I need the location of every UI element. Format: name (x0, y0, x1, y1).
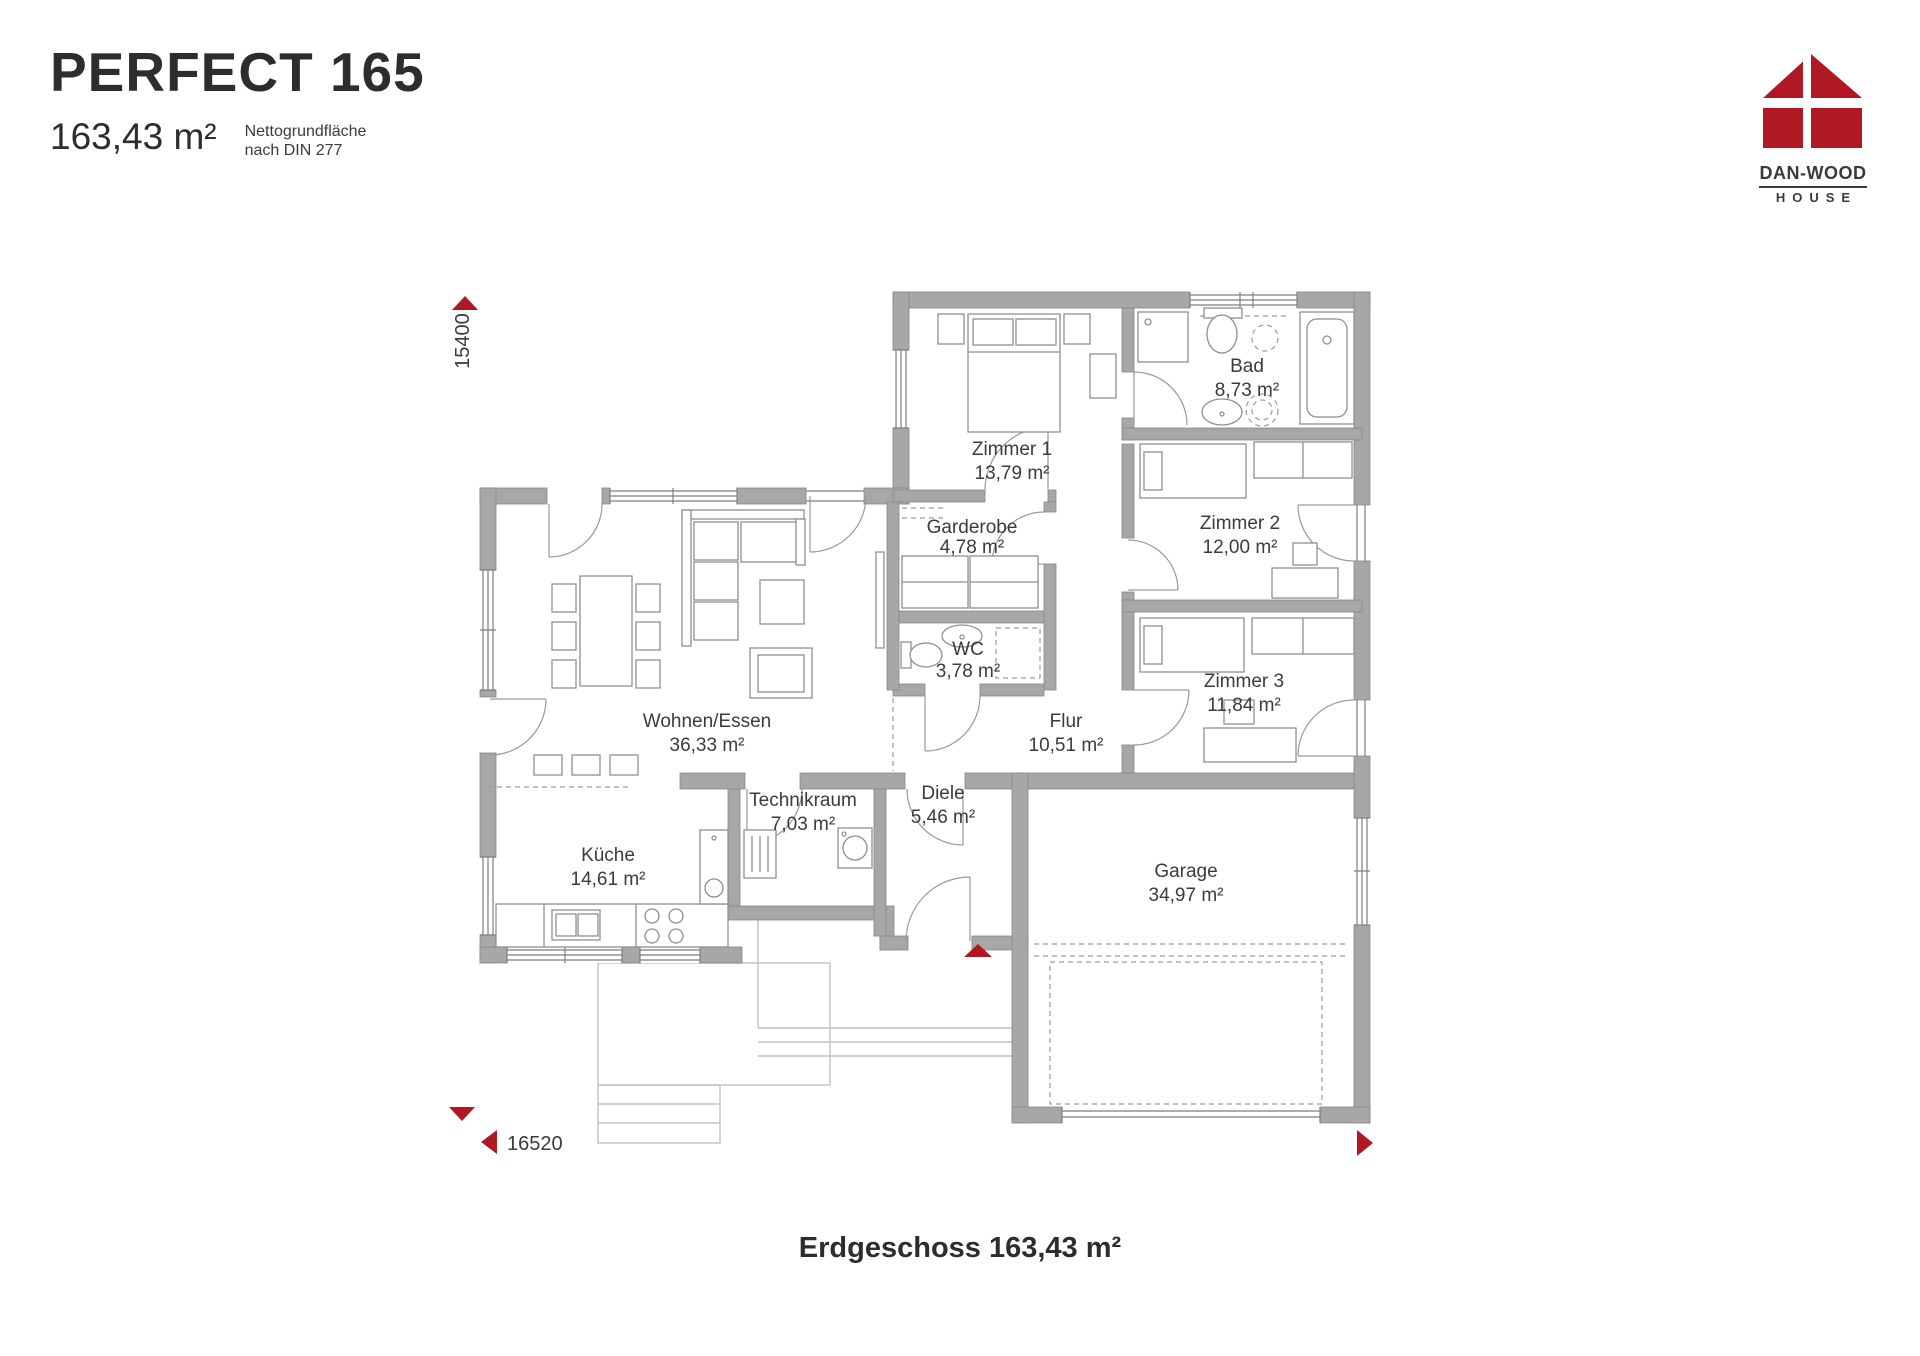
floor-plan: 15400 16520 Zimmer 1 13,79 m² Bad 8,73 m… (0, 0, 1920, 1356)
window-garage (1354, 818, 1370, 925)
room-label-bad-name: Bad (1230, 356, 1264, 377)
room-label-wohnen-area: 36,33 m² (670, 735, 745, 756)
window-wohnen-left (480, 570, 496, 690)
arrow-left-icon (481, 1130, 497, 1154)
room-label-zimmer3-name: Zimmer 3 (1204, 671, 1284, 692)
dimension-height-label: 15400 (452, 313, 474, 369)
room-label-diele-name: Diele (921, 783, 964, 804)
window-kueche-bottom-2 (640, 947, 700, 963)
room-label-garderobe-name: Garderobe (927, 517, 1018, 538)
room-label-wc-name: WC (952, 639, 984, 660)
room-label-wohnen-name: Wohnen/Essen (643, 711, 772, 732)
room-label-wc-area: 3,78 m² (936, 661, 1000, 682)
room-label-zimmer1-name: Zimmer 1 (972, 439, 1052, 460)
garderobe-furniture (902, 556, 1038, 608)
room-label-zimmer2-name: Zimmer 2 (1200, 513, 1280, 534)
arrow-up-icon (452, 296, 478, 310)
dimension-width-label: 16520 (507, 1133, 563, 1155)
zimmer1-furniture (938, 314, 1116, 432)
room-label-garderobe-area2: 4,78 m² (940, 537, 1004, 558)
window-kueche-left (480, 857, 496, 935)
technikraum-equipment (744, 828, 872, 878)
room-label-zimmer1-area: 13,79 m² (975, 463, 1050, 484)
room-label-bad-area: 8,73 m² (1215, 380, 1279, 401)
room-label-technikraum-name: Technikraum (749, 790, 857, 811)
room-label-zimmer3-area: 11,84 m² (1207, 695, 1281, 716)
window-zimmer1 (893, 350, 909, 428)
page: PERFECT 165 163,43 m² Nettogrundfläche n… (0, 0, 1920, 1356)
window-bad (1190, 292, 1297, 308)
room-label-flur-name: Flur (1050, 711, 1083, 732)
garage-door (1062, 1107, 1320, 1123)
arrow-right-icon (1357, 1130, 1373, 1156)
room-label-flur-area: 10,51 m² (1029, 735, 1104, 756)
direction-markers (449, 296, 1373, 1156)
room-label-kueche-name: Küche (581, 845, 635, 866)
window-kueche-bottom-1 (507, 947, 622, 963)
window-wohnen-top (610, 488, 737, 504)
room-label-zimmer2-area: 12,00 m² (1203, 537, 1278, 558)
room-label-kueche-area: 14,61 m² (571, 869, 646, 890)
room-label-garage-name: Garage (1154, 861, 1217, 882)
room-label-technikraum-area: 7,03 m² (771, 814, 835, 835)
floor-label: Erdgeschoss 163,43 m² (0, 1232, 1920, 1265)
arrow-down-icon (449, 1107, 475, 1121)
room-label-garage-area: 34,97 m² (1149, 885, 1224, 906)
room-label-diele-area: 5,46 m² (911, 807, 975, 828)
